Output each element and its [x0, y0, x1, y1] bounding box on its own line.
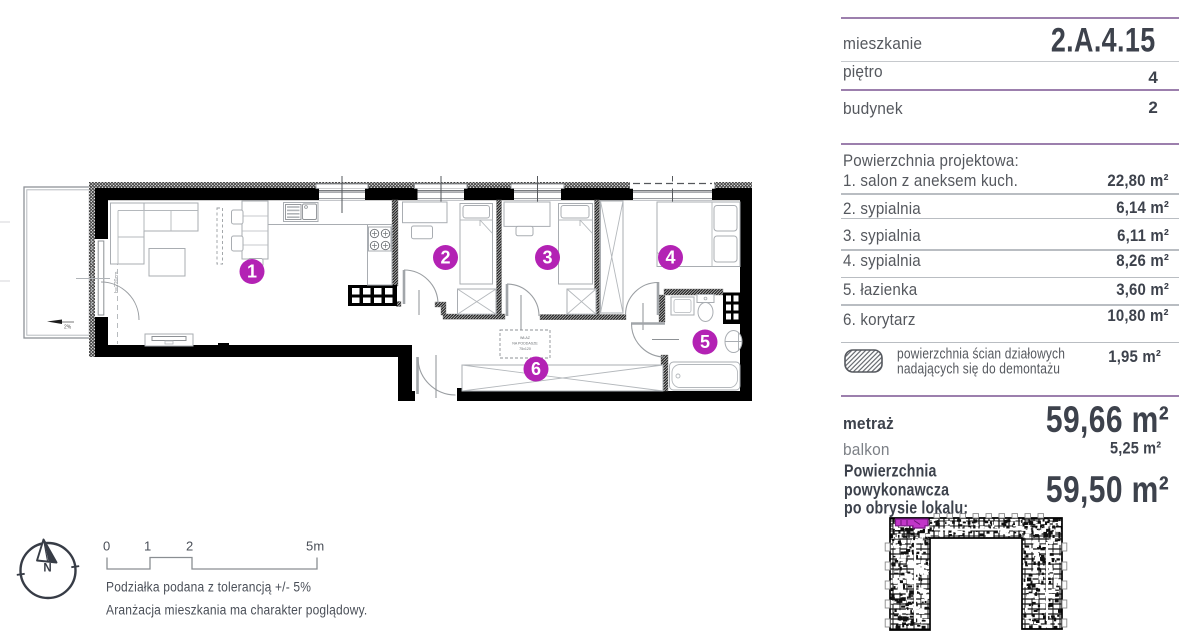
- svg-text:N: N: [43, 563, 51, 575]
- svg-text:h=220cm: h=220cm: [114, 272, 120, 294]
- svg-text:3: 3: [542, 248, 552, 268]
- svg-text:6: 6: [531, 359, 541, 379]
- svg-text:4: 4: [665, 248, 675, 268]
- svg-text:WŁAZ: WŁAZ: [520, 336, 531, 340]
- svg-text:75x120: 75x120: [519, 347, 531, 351]
- svg-text:2%: 2%: [64, 325, 72, 331]
- svg-text:1: 1: [247, 262, 257, 282]
- svg-text:2: 2: [440, 248, 450, 268]
- svg-text:5: 5: [700, 332, 710, 352]
- svg-text:NA PODDASZE: NA PODDASZE: [512, 342, 538, 346]
